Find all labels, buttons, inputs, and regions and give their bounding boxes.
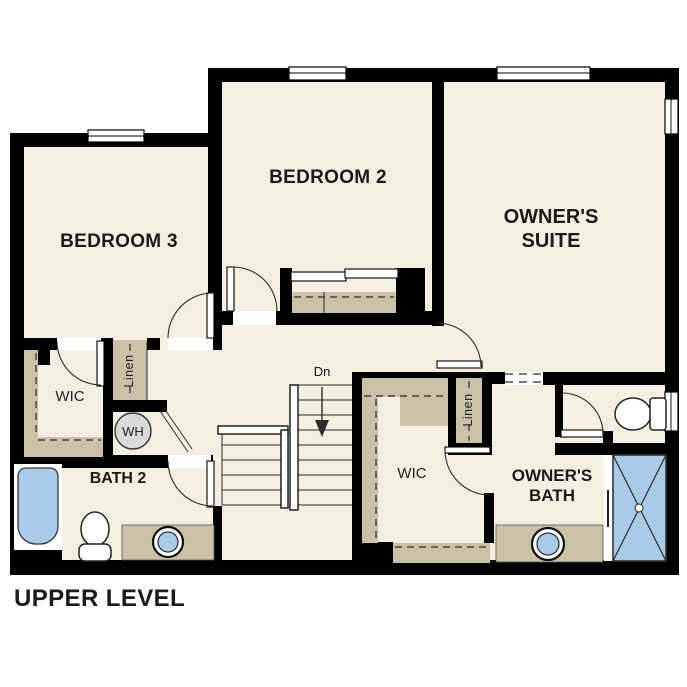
floor-plan-page: BEDROOM 3 BEDROOM 2 OWNER'S SUITE BATH 2…	[0, 0, 687, 687]
floor-plan-drawing	[0, 0, 687, 687]
shower	[604, 455, 666, 561]
owners-suite-top-window	[497, 67, 590, 80]
water-heater	[115, 413, 151, 449]
bath2-vanity	[122, 525, 214, 560]
bedroom3-window	[88, 130, 144, 142]
bath2-toilet	[79, 512, 111, 561]
bedroom2-window	[289, 67, 346, 80]
owners-vanity	[496, 525, 603, 562]
bathtub	[14, 464, 62, 550]
owners-suite-side-window	[665, 99, 678, 134]
toilet-room-window	[665, 392, 678, 431]
owners-toilet	[615, 398, 666, 430]
